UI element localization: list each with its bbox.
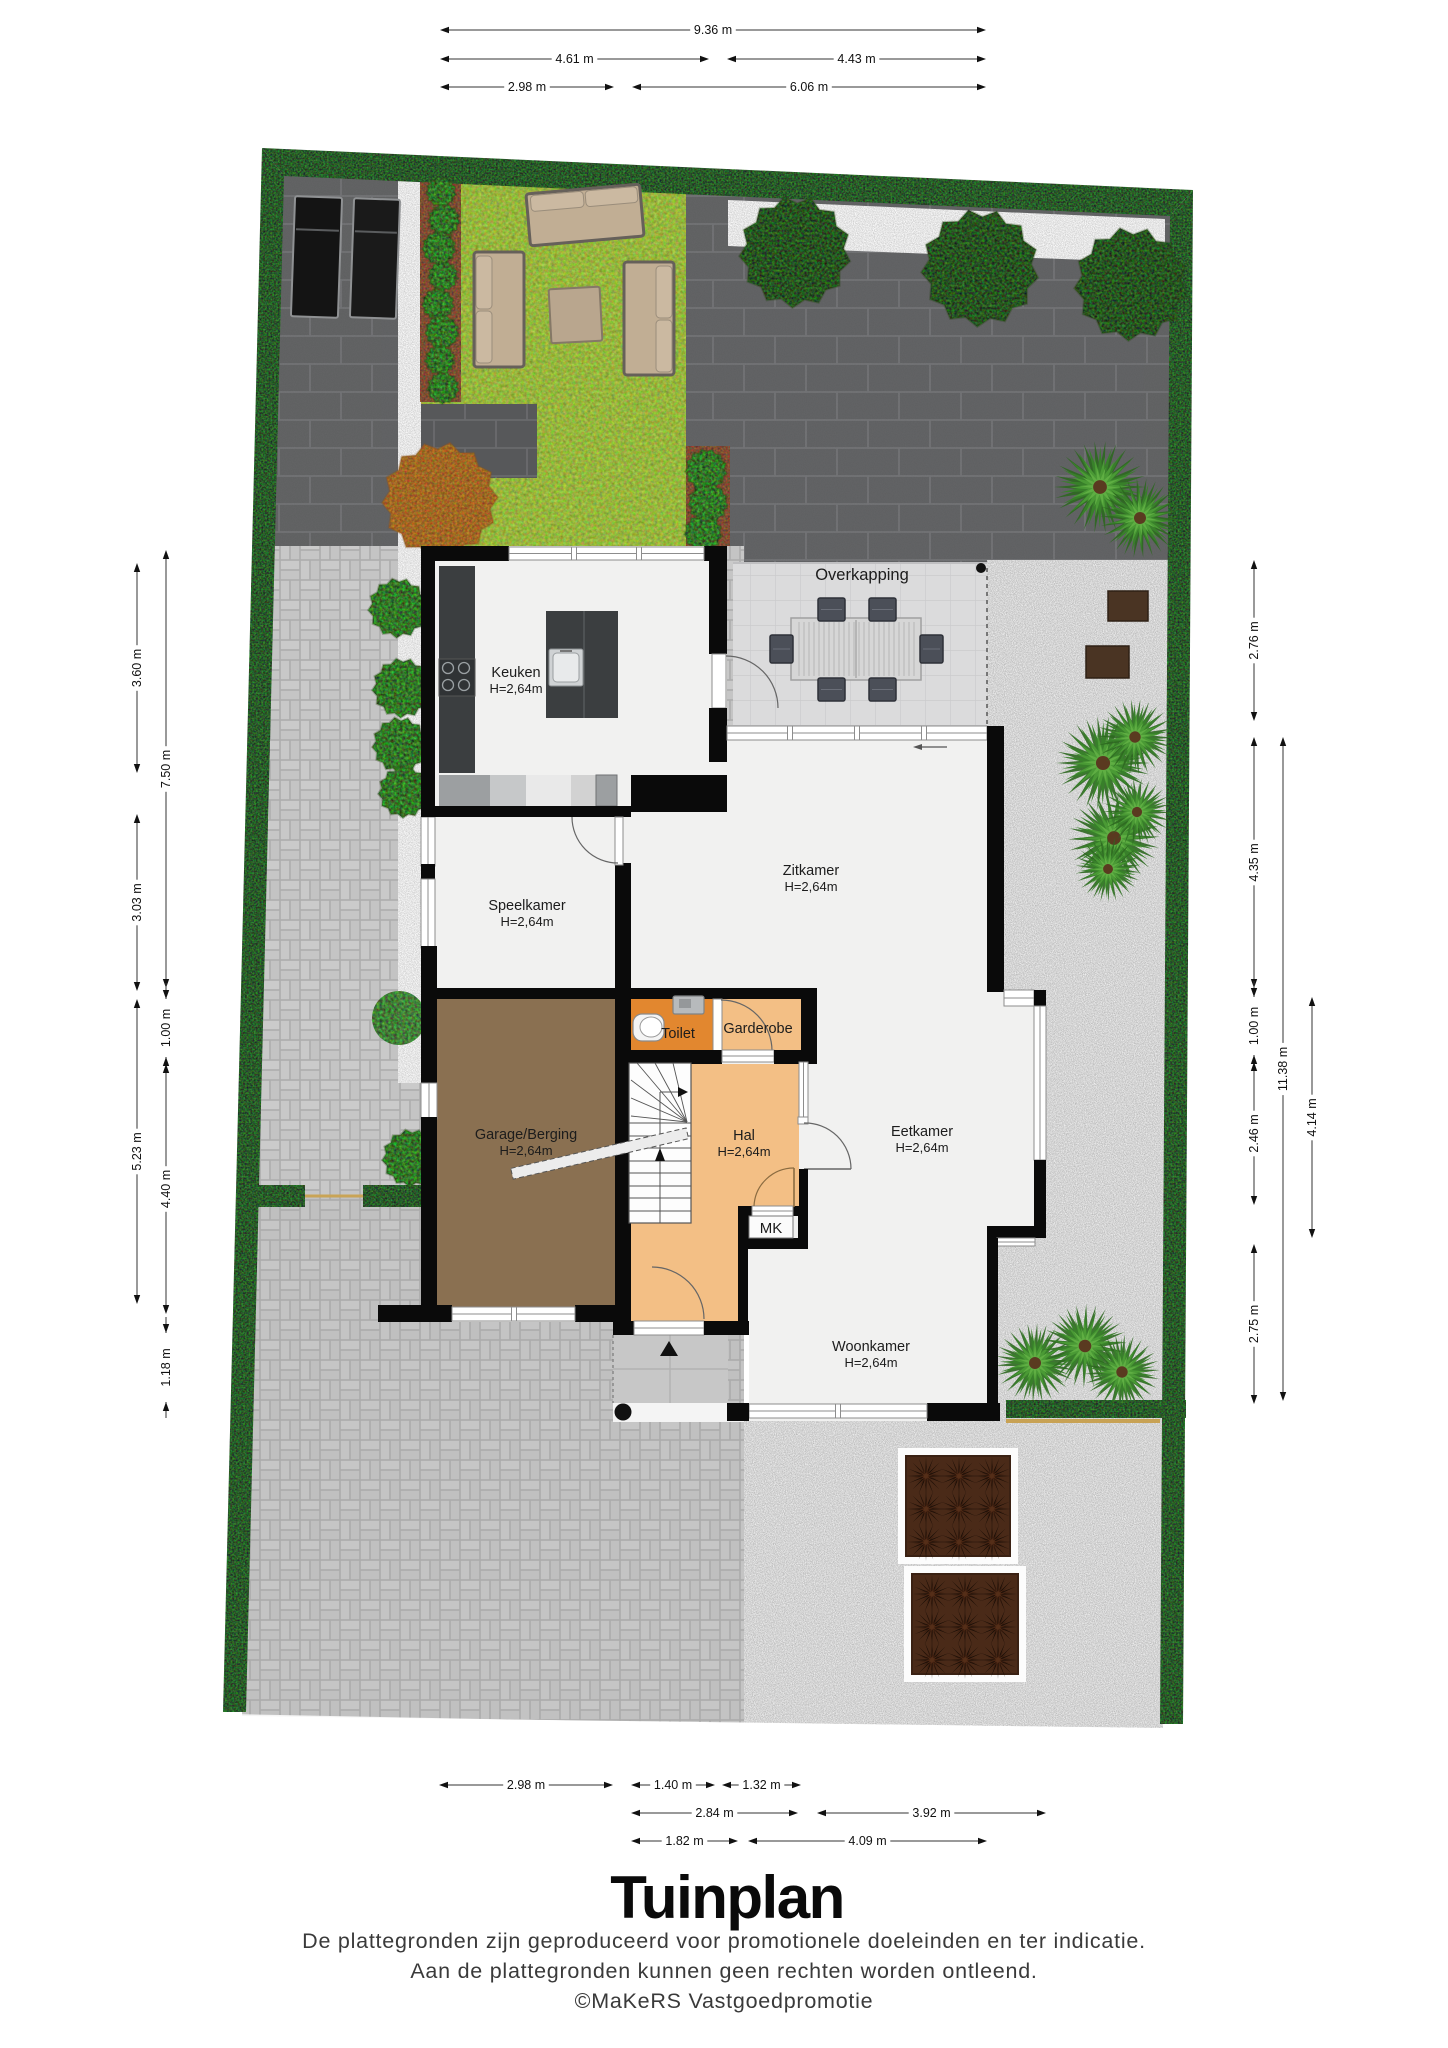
svg-text:3.03 m: 3.03 m: [130, 883, 144, 921]
svg-text:Zitkamer: Zitkamer: [783, 863, 840, 879]
svg-text:4.40 m: 4.40 m: [159, 1170, 173, 1208]
svg-text:De plattegronden zijn geproduc: De plattegronden zijn geproduceerd voor …: [302, 1929, 1146, 1953]
svg-text:H=2,64m: H=2,64m: [784, 879, 837, 894]
svg-text:H=2,64m: H=2,64m: [844, 1355, 897, 1370]
svg-text:Garage/Berging: Garage/Berging: [475, 1127, 577, 1143]
svg-text:5.23 m: 5.23 m: [130, 1132, 144, 1170]
svg-text:11.38 m: 11.38 m: [1276, 1047, 1290, 1091]
svg-text:H=2,64m: H=2,64m: [499, 1143, 552, 1158]
svg-text:Woonkamer: Woonkamer: [832, 1339, 910, 1355]
svg-text:2.98 m: 2.98 m: [507, 1778, 545, 1792]
svg-text:1.18 m: 1.18 m: [159, 1348, 173, 1386]
svg-text:Toilet: Toilet: [661, 1026, 695, 1042]
svg-text:4.09 m: 4.09 m: [848, 1834, 886, 1848]
svg-text:1.00 m: 1.00 m: [159, 1009, 173, 1047]
svg-text:Aan de plattegronden kunnen ge: Aan de plattegronden kunnen geen rechten…: [410, 1959, 1037, 1983]
svg-text:4.35 m: 4.35 m: [1247, 843, 1261, 881]
svg-text:3.60 m: 3.60 m: [130, 649, 144, 687]
svg-text:7.50 m: 7.50 m: [159, 750, 173, 788]
svg-text:2.76 m: 2.76 m: [1247, 621, 1261, 659]
svg-text:H=2,64m: H=2,64m: [895, 1140, 948, 1155]
svg-text:6.06 m: 6.06 m: [790, 80, 828, 94]
svg-text:©MaKeRS Vastgoedpromotie: ©MaKeRS Vastgoedpromotie: [575, 1989, 874, 2013]
svg-text:Eetkamer: Eetkamer: [891, 1124, 953, 1140]
svg-text:1.40 m: 1.40 m: [654, 1778, 692, 1792]
svg-text:4.61 m: 4.61 m: [555, 52, 593, 66]
svg-text:4.14 m: 4.14 m: [1305, 1098, 1319, 1136]
svg-text:1.82 m: 1.82 m: [665, 1834, 703, 1848]
svg-text:3.92 m: 3.92 m: [912, 1806, 950, 1820]
svg-text:Keuken: Keuken: [491, 665, 540, 681]
svg-text:Garderobe: Garderobe: [723, 1021, 792, 1037]
svg-text:2.98 m: 2.98 m: [508, 80, 546, 94]
svg-text:H=2,64m: H=2,64m: [500, 914, 553, 929]
svg-text:9.36 m: 9.36 m: [694, 23, 732, 37]
svg-text:Hal: Hal: [733, 1128, 755, 1144]
svg-text:H=2,64m: H=2,64m: [489, 681, 542, 696]
svg-text:Speelkamer: Speelkamer: [488, 898, 566, 914]
svg-text:4.43 m: 4.43 m: [837, 52, 875, 66]
svg-text:MK: MK: [760, 1220, 783, 1237]
svg-text:Tuinplan: Tuinplan: [610, 1864, 844, 1931]
svg-text:2.46 m: 2.46 m: [1247, 1114, 1261, 1152]
svg-text:H=2,64m: H=2,64m: [717, 1144, 770, 1159]
svg-text:2.84 m: 2.84 m: [695, 1806, 733, 1820]
svg-text:1.32 m: 1.32 m: [742, 1778, 780, 1792]
svg-text:2.75 m: 2.75 m: [1247, 1305, 1261, 1343]
svg-text:Overkapping: Overkapping: [815, 566, 909, 584]
svg-text:1.00 m: 1.00 m: [1247, 1007, 1261, 1045]
